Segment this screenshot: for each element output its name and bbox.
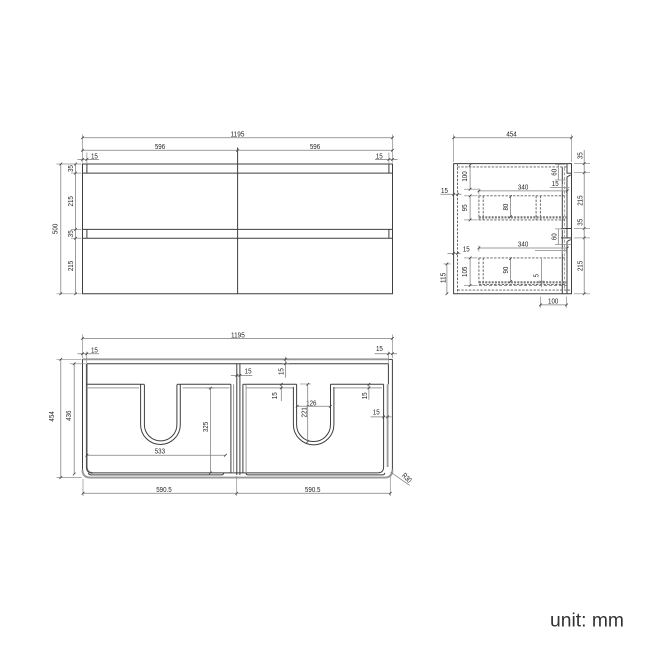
svg-text:15: 15 — [463, 245, 470, 254]
svg-text:596: 596 — [310, 142, 320, 151]
svg-text:215: 215 — [575, 261, 584, 271]
svg-text:35: 35 — [575, 219, 584, 226]
svg-text:35: 35 — [66, 165, 75, 172]
svg-text:90: 90 — [501, 267, 510, 274]
svg-text:596: 596 — [155, 142, 165, 151]
svg-text:454: 454 — [506, 130, 516, 139]
svg-text:15: 15 — [552, 179, 559, 188]
svg-text:533: 533 — [155, 447, 165, 456]
svg-text:35: 35 — [66, 230, 75, 237]
svg-text:105: 105 — [460, 267, 469, 277]
svg-text:R30: R30 — [400, 471, 414, 485]
svg-text:80: 80 — [501, 204, 510, 211]
svg-text:95: 95 — [460, 204, 469, 211]
svg-text:unit: mm: unit: mm — [550, 611, 624, 632]
svg-text:215: 215 — [575, 195, 584, 205]
svg-text:454: 454 — [47, 411, 56, 421]
svg-text:215: 215 — [66, 196, 75, 206]
svg-text:15: 15 — [91, 345, 98, 354]
svg-text:15: 15 — [245, 366, 252, 375]
svg-text:15: 15 — [376, 151, 383, 160]
svg-text:60: 60 — [549, 169, 558, 176]
svg-text:15: 15 — [360, 392, 369, 399]
svg-text:15: 15 — [376, 344, 383, 353]
svg-text:500: 500 — [51, 224, 60, 234]
svg-text:590.5: 590.5 — [156, 485, 172, 494]
svg-text:15: 15 — [373, 407, 380, 416]
svg-text:15: 15 — [270, 392, 279, 399]
svg-text:15: 15 — [91, 151, 98, 160]
svg-text:60: 60 — [549, 233, 558, 240]
svg-text:100: 100 — [460, 171, 469, 181]
svg-text:340: 340 — [518, 183, 528, 192]
svg-text:100: 100 — [548, 297, 558, 306]
svg-text:436: 436 — [64, 411, 73, 421]
svg-text:15: 15 — [441, 186, 448, 195]
svg-text:221: 221 — [300, 407, 309, 417]
svg-text:325: 325 — [201, 422, 210, 432]
svg-text:115: 115 — [438, 273, 447, 283]
svg-text:5: 5 — [531, 274, 540, 277]
svg-text:15: 15 — [276, 368, 285, 375]
svg-text:215: 215 — [66, 261, 75, 271]
svg-text:340: 340 — [518, 240, 528, 249]
svg-text:590.5: 590.5 — [305, 485, 321, 494]
svg-text:35: 35 — [575, 152, 584, 159]
svg-text:1195: 1195 — [231, 130, 245, 139]
svg-text:1195: 1195 — [231, 330, 245, 339]
